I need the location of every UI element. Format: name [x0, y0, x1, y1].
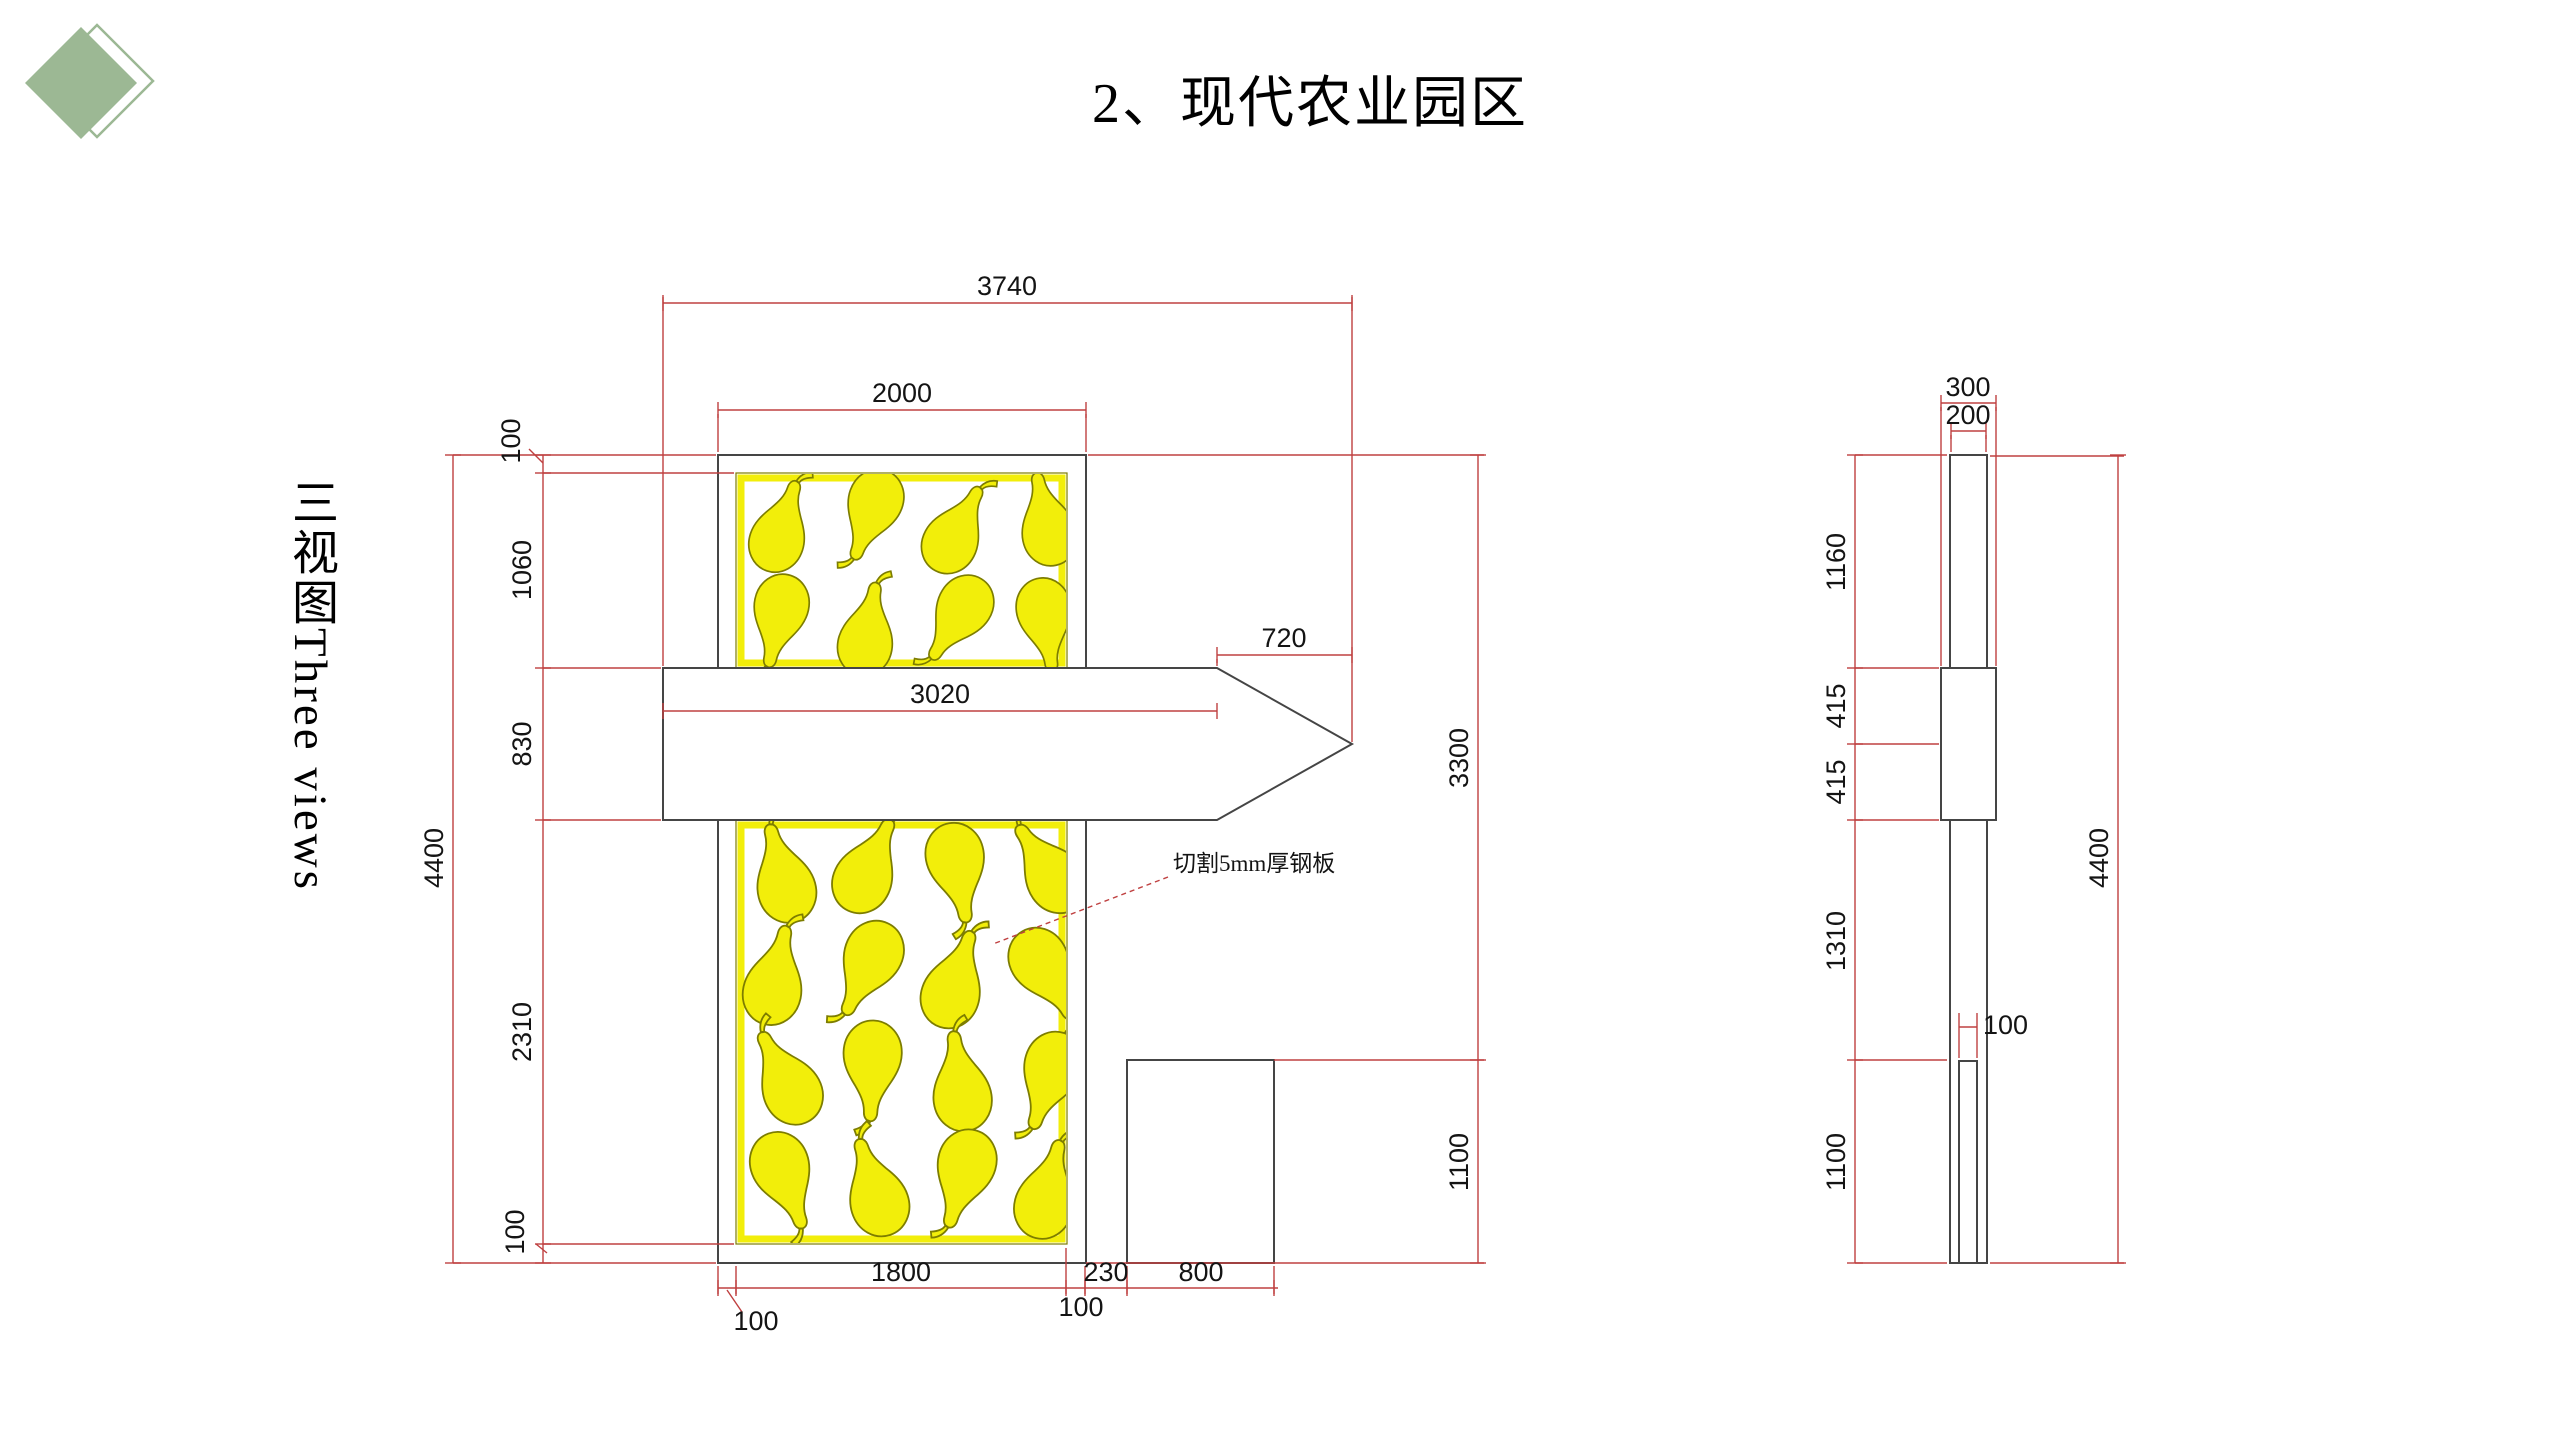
- dim-arrow-shaft: 3020: [910, 679, 970, 709]
- dim-overall-width: 3740: [977, 271, 1037, 301]
- dim-band-upper-half: 415: [1821, 683, 1851, 728]
- dim-left-border: 100: [733, 1306, 778, 1336]
- logo: [25, 25, 153, 139]
- pedestal: [1127, 1060, 1274, 1263]
- dim-lower-section: 1310: [1821, 911, 1851, 971]
- dim-gap-230: 230: [1083, 1257, 1128, 1287]
- dim-cap-width: 300: [1945, 372, 1990, 402]
- dim-bottom-border: 100: [500, 1209, 530, 1254]
- dim-pedestal-width: 800: [1178, 1257, 1223, 1287]
- dim-pedestal-height: 1100: [1444, 1133, 1474, 1191]
- steel-plate-annotation: 切割5mm厚钢板: [1173, 851, 1335, 876]
- dim-lower-yellow: 2310: [507, 1002, 537, 1062]
- side-column: [1950, 455, 1987, 1263]
- dim-column-width: 200: [1945, 400, 1990, 430]
- upper-pear-panel: [736, 454, 1083, 689]
- dim-base-section: 1100: [1821, 1133, 1851, 1191]
- slide: 2、现代农业园区 三视图Three views: [0, 0, 2560, 1440]
- arrow-band: [663, 668, 1352, 820]
- logo-filled-diamond: [25, 27, 137, 139]
- dim-band-height: 830: [507, 721, 537, 766]
- dim-panel-width: 2000: [872, 378, 932, 408]
- side-band-block: [1941, 668, 1996, 820]
- dim-overall-height: 4400: [419, 828, 449, 888]
- dim-upper-yellow: 1060: [507, 540, 537, 600]
- dim-top-to-pedestal: 3300: [1444, 728, 1474, 788]
- dim-top-border: 100: [496, 418, 526, 463]
- three-view-drawing: 3740 2000 720 3020 100 1060 830 2310 100…: [0, 0, 2560, 1440]
- dim-plate-width: 100: [1983, 1010, 2028, 1040]
- dim-yellow-width: 1800: [871, 1257, 931, 1287]
- dim-arrow-head: 720: [1261, 623, 1306, 653]
- dim-band-lower-half: 415: [1821, 759, 1851, 804]
- front-view: 3740 2000 720 3020 100 1060 830 2310 100…: [419, 271, 1486, 1336]
- lower-pear-panel: [728, 794, 1105, 1252]
- side-view: 300 200 1160 415 415 1310 1100 4400 100: [1821, 372, 2126, 1263]
- dim-right-border: 100: [1058, 1292, 1103, 1322]
- dim-upper-section: 1160: [1821, 533, 1851, 591]
- dim-side-overall-height: 4400: [2084, 828, 2114, 888]
